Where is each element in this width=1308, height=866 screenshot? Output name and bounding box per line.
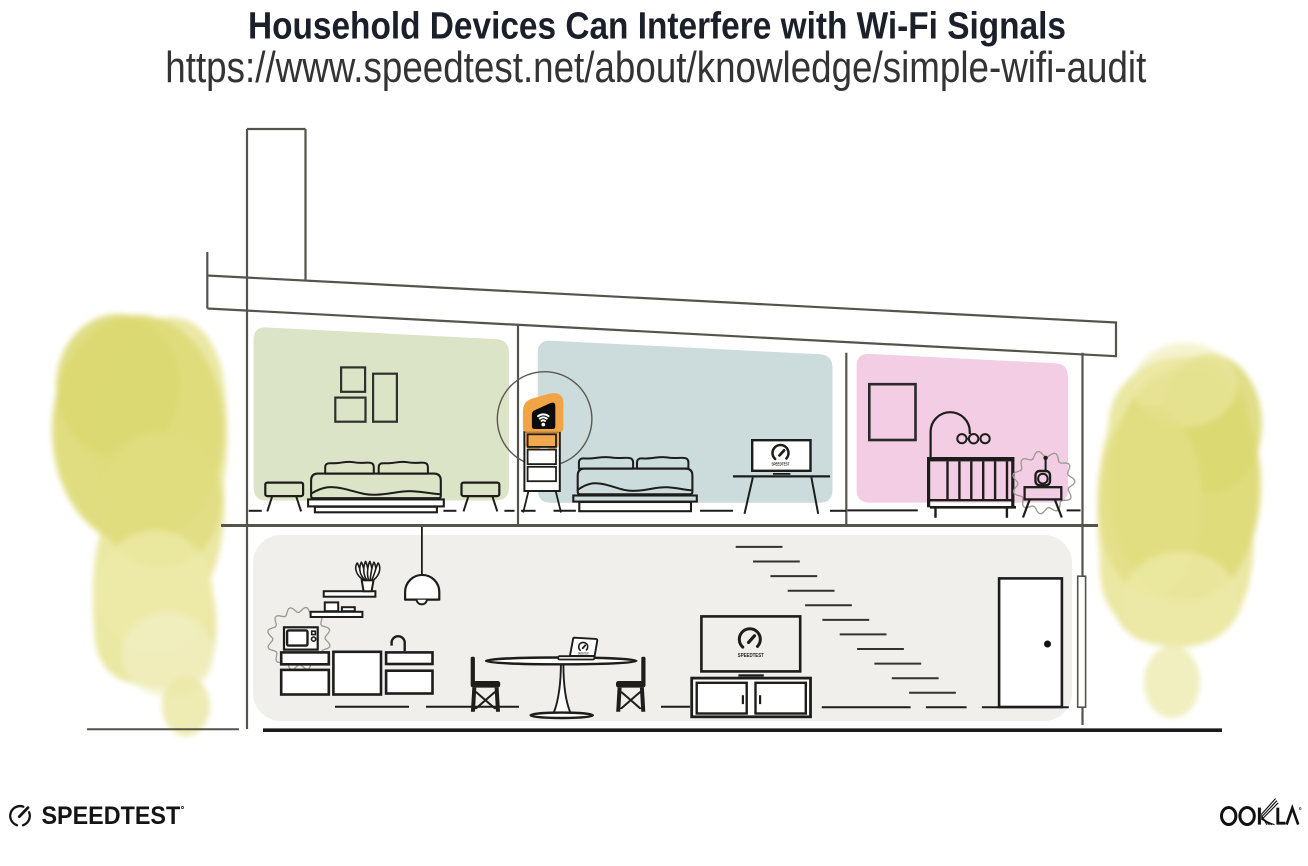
svg-text:SPEEDTEST: SPEEDTEST <box>772 462 790 467</box>
svg-text:Household Devices Can Interfer: Household Devices Can Interfere with Wi-… <box>248 6 1066 48</box>
svg-text:SPEEDTEST: SPEEDTEST <box>42 803 181 830</box>
svg-text:SPEEDTEST: SPEEDTEST <box>738 653 764 659</box>
svg-text:https://www.speedtest.net/abou: https://www.speedtest.net/about/knowledg… <box>165 43 1146 92</box>
svg-text:SPEEDTEST: SPEEDTEST <box>578 651 589 655</box>
